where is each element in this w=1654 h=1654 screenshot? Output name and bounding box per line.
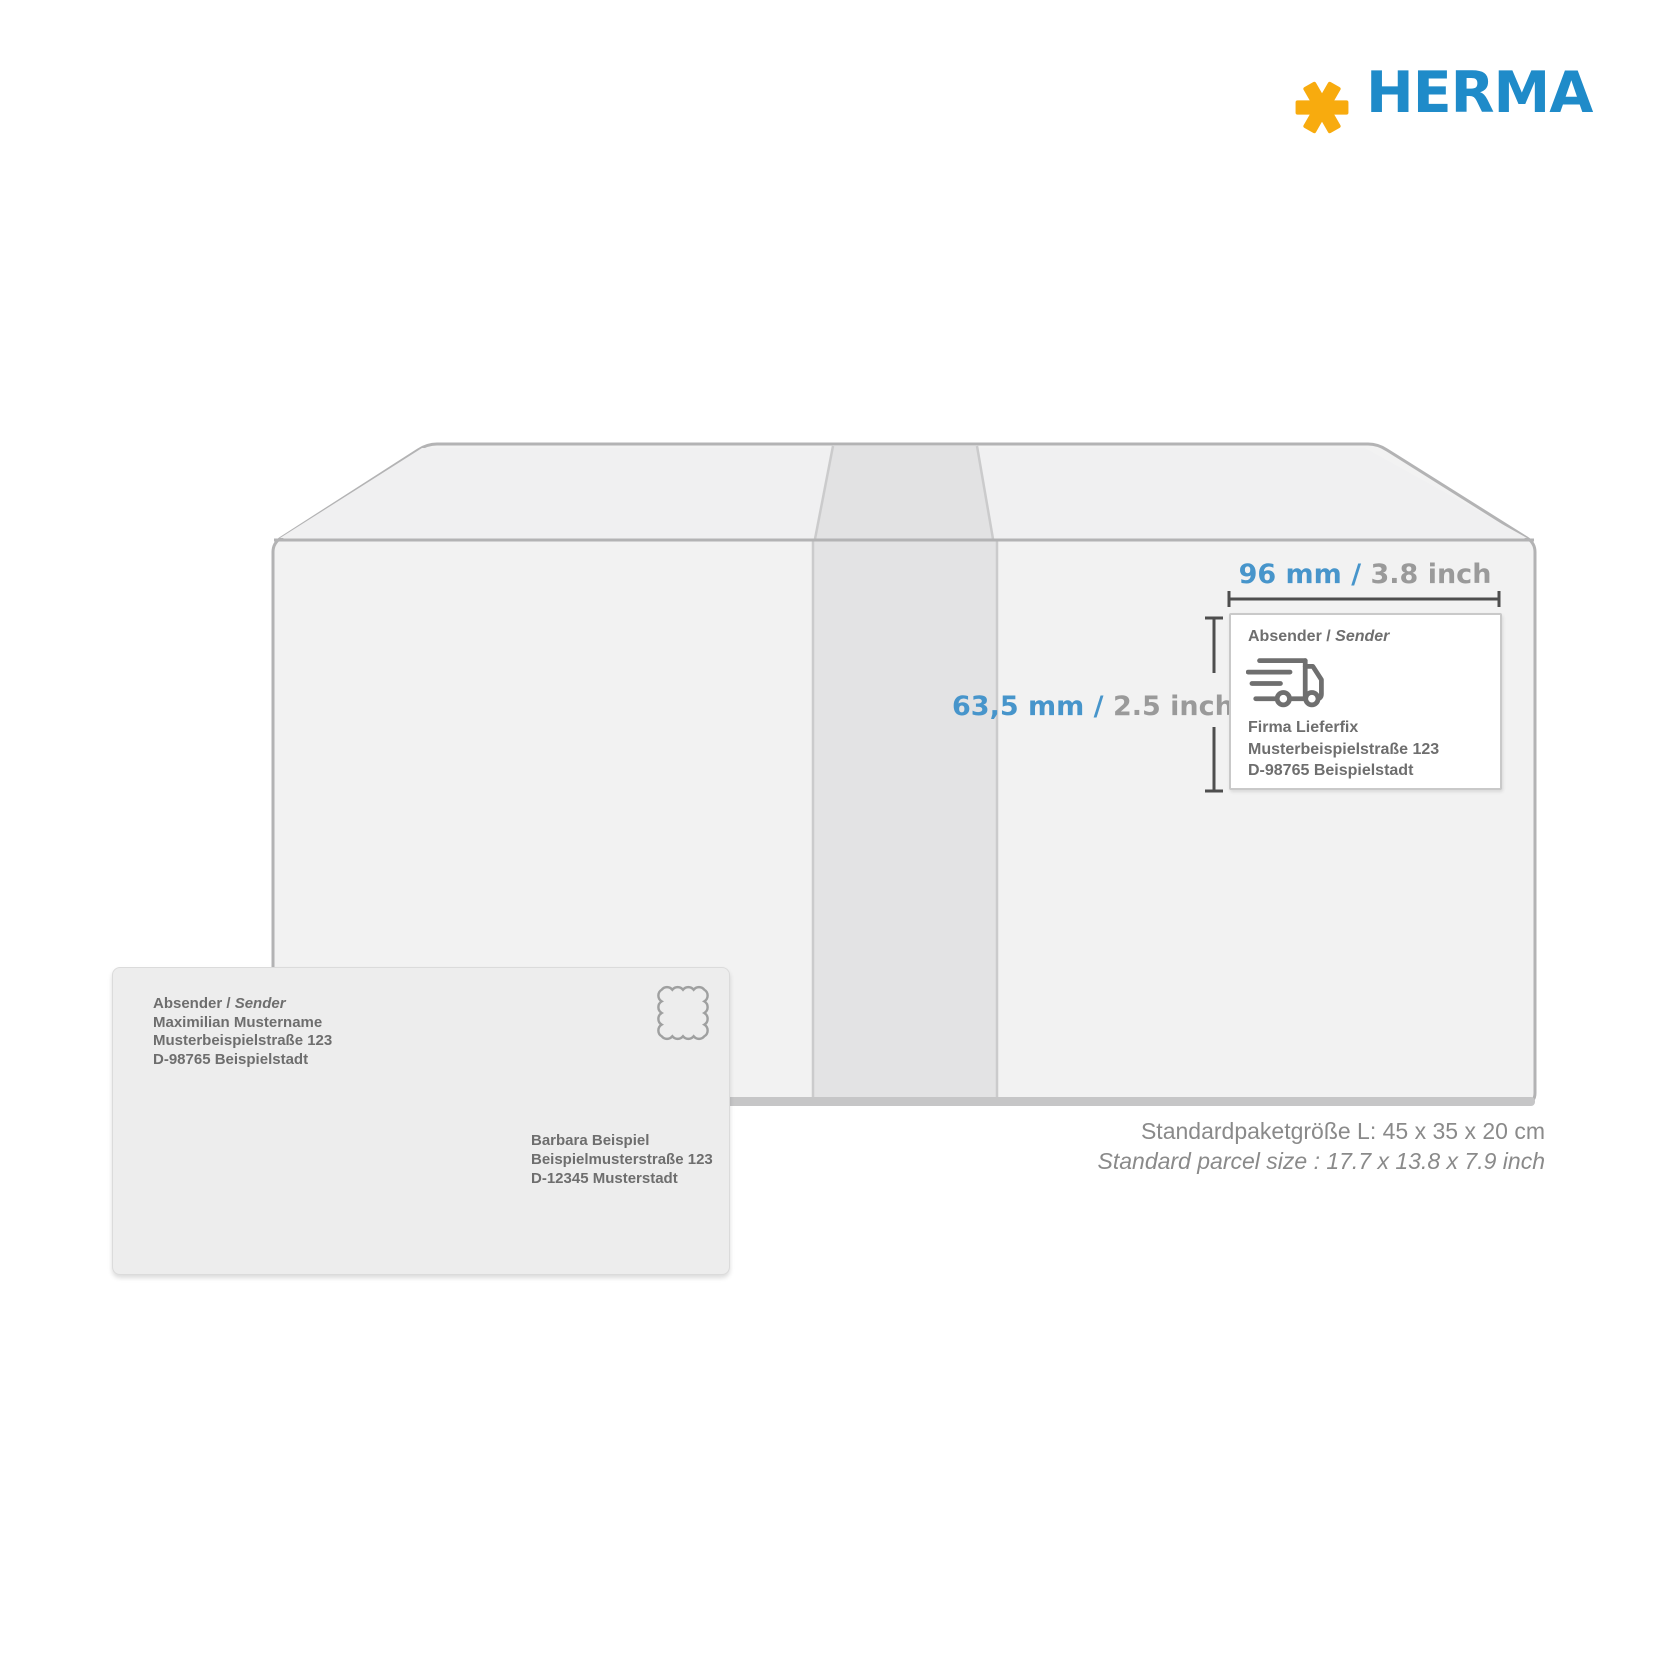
width-imperial-value: 3.8 inch [1361, 559, 1491, 590]
label-sender-header-prefix: Absender / [1248, 628, 1335, 645]
label-sender-header: Absender / Sender [1248, 628, 1389, 646]
delivery-truck-icon [1246, 654, 1334, 713]
height-dimension-label: 63,5 mm / 2.5 inch [952, 691, 1222, 722]
label-sender-address: Firma Lieferfix Musterbeispielstraße 123… [1248, 717, 1439, 782]
envelope-sender-block: Absender / Sender Maximilian Mustername … [153, 995, 332, 1069]
parcel-tape-top [815, 446, 993, 539]
label-address-line: D-98765 Beispielstadt [1248, 760, 1439, 782]
label-address-line: Firma Lieferfix [1248, 717, 1439, 739]
envelope-recipient-line: Beispielmusterstraße 123 [531, 1150, 713, 1169]
envelope-sender-line: Musterbeispielstraße 123 [153, 1032, 332, 1051]
envelope: Absender / Sender Maximilian Mustername … [112, 967, 730, 1275]
envelope-sender-header: Absender / Sender [153, 995, 332, 1014]
herma-wordmark: HERMA [1366, 63, 1592, 123]
herma-asterisk-icon [1294, 77, 1350, 138]
parcel-illustration [0, 0, 1654, 1654]
herma-parcel-label-illustration: HERMA 96 mm / 3.8 inch 63,5 mm / 2.5 inc… [0, 0, 1654, 1654]
label-sender-header-italic: Sender [1335, 628, 1389, 645]
envelope-recipient-block: Barbara Beispiel Beispielmusterstraße 12… [531, 1131, 713, 1188]
width-dimension-label: 96 mm / 3.8 inch [1229, 559, 1501, 590]
label-address-line: Musterbeispielstraße 123 [1248, 739, 1439, 761]
parcel-size-caption-en: Standard parcel size : 17.7 x 13.8 x 7.9… [1045, 1146, 1545, 1176]
parcel-size-caption-de: Standardpaketgröße L: 45 x 35 x 20 cm [1045, 1116, 1545, 1146]
envelope-sender-line: D-98765 Beispielstadt [153, 1051, 332, 1070]
height-imperial-value: 2.5 inch [1104, 691, 1234, 722]
envelope-sender-line: Maximilian Mustername [153, 1014, 332, 1033]
parcel-size-caption: Standardpaketgröße L: 45 x 35 x 20 cm St… [1045, 1116, 1545, 1176]
width-metric-value: 96 mm / [1239, 559, 1362, 590]
envelope-sender-header-italic: Sender [235, 995, 286, 1012]
postage-stamp-icon [655, 981, 711, 1045]
envelope-recipient-line: Barbara Beispiel [531, 1131, 713, 1150]
height-metric-value: 63,5 mm / [952, 691, 1104, 722]
envelope-recipient-line: D-12345 Musterstadt [531, 1169, 713, 1188]
shipping-label: Absender / Sender Firma Lieferfix Muster… [1229, 613, 1502, 790]
parcel-tape-front [813, 540, 997, 1101]
envelope-sender-header-prefix: Absender / [153, 995, 235, 1012]
